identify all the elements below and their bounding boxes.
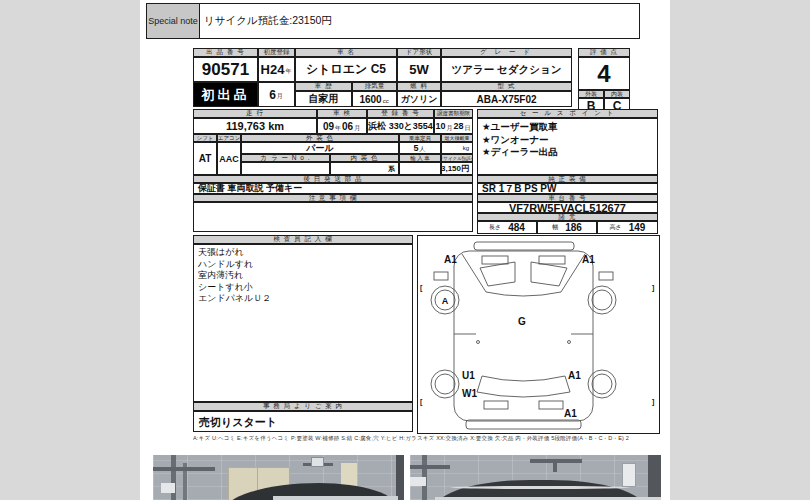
grade-header: グ レ ー ド (441, 48, 572, 57)
length-label: 長さ (489, 223, 501, 232)
door-shape: 5W (397, 57, 441, 82)
color-no-header: カ ラ ー N o . (241, 154, 330, 162)
score-header: 評 価 点 (578, 48, 630, 57)
wall-pipe (171, 455, 176, 500)
lot-number-header: 出 品 番 号 (193, 48, 258, 57)
fuel: ガソリン (397, 91, 441, 107)
model-code-header: 型 式 (441, 82, 572, 91)
oem-equipment: SR 1７B PS PW (477, 183, 658, 194)
score: 4 (578, 57, 630, 90)
svg-text:]: ] (652, 398, 654, 406)
wall-box (622, 463, 636, 487)
camera (311, 457, 324, 467)
damage-code-rear-right: A1 (568, 370, 581, 381)
deadline-month-unit: 月 (447, 124, 453, 133)
inspection-year-unit: 年 (335, 124, 341, 133)
door-frame (648, 455, 661, 500)
chassis-number-header: 車 台 番 号 (477, 194, 658, 202)
wall-box (161, 483, 175, 493)
sales-points-header: セ ー ル ス ポ イ ン ト (477, 109, 658, 118)
cc-unit: cc (383, 98, 389, 104)
damage-diagram: [ ] [ ] A1 A1 A G U1 W1 A1 A1 (417, 235, 660, 434)
length-value: 484 (508, 222, 525, 233)
vehicle-photo-2[interactable] (410, 455, 661, 500)
lot-number: 90571 (193, 57, 258, 82)
damage-code-glass: G (518, 316, 526, 327)
svg-text:[: [ (420, 398, 423, 406)
svg-text:[: [ (420, 284, 423, 292)
max-load: kg (441, 142, 473, 154)
exterior-color-header: 外 装 色 (241, 134, 399, 142)
office-notice: 売切りスタート (193, 411, 413, 432)
width-label: 幅 (552, 223, 558, 232)
width-value: 186 (565, 222, 582, 233)
damage-code-rear-left-lower: W1 (462, 388, 477, 399)
inspection-date: 09 年 06 月 (317, 118, 367, 134)
vehicle-photo-1[interactable] (153, 455, 404, 500)
first-registration-header: 初度登録 (258, 48, 295, 57)
inspector-note: シートすれ小 (198, 282, 408, 294)
displacement-header: 排気量 (352, 82, 397, 91)
svg-text:]: ] (652, 284, 654, 292)
damage-code-front-wheel: A (442, 296, 449, 306)
exterior-color: パール (241, 142, 399, 154)
aircon: AAC (217, 142, 241, 175)
oem-equipment-header: 純 正 装 備 (477, 175, 658, 183)
import-flag (399, 162, 441, 175)
first-registration-year: H24 年 (258, 57, 295, 82)
month-unit: 月 (277, 92, 283, 101)
inspector-note: 天張はがれ (198, 247, 408, 259)
car-name: シトロエン C5 (295, 57, 397, 82)
first-registration-month: 6 月 (258, 82, 295, 107)
car-name-header: 車 名 (295, 48, 397, 57)
damage-code-front-left: A1 (444, 254, 457, 265)
mileage-header: 走 行 (193, 109, 317, 118)
later-parts: 保証書 車両取説 予備キー (193, 183, 473, 194)
fuel-header: 燃 料 (397, 82, 441, 91)
import-header: 輸 入 車 (399, 154, 441, 162)
inspector-notes-header: 検 査 員 記 入 欄 (193, 235, 413, 244)
recycle-deposit: 23,150円 (441, 162, 473, 175)
car-body (273, 496, 398, 500)
inspector-note: 室内薄汚れ (198, 270, 408, 282)
caution-box (193, 202, 473, 232)
door-shape-header: ドア形状 (397, 48, 441, 57)
capacity-unit: 人 (420, 145, 426, 154)
front-bumper-shape (474, 242, 574, 250)
ceiling-pipe (553, 459, 557, 472)
sales-point-item: ★ユーザー買取車 (482, 121, 653, 134)
spec-height: 高さ 149 (597, 221, 658, 234)
model-code: ABA-X75F02 (441, 91, 572, 107)
capacity-header: 乗車定員 (399, 134, 441, 142)
displacement: 1600 cc (352, 91, 397, 107)
registration-number: 浜松 330と3554 (367, 118, 434, 134)
office-notice-header: 事 務 局 よ り ご 案 内 (193, 402, 413, 411)
sales-points-box: ★ユーザー買取車 ★ワンオーナー ★ディーラー出品 (477, 118, 658, 175)
damage-code-rear-left-upper: U1 (462, 370, 475, 381)
capacity-value: 5 (413, 143, 418, 153)
damage-code-front-right: A1 (582, 254, 595, 265)
inspector-note: ハンドルすれ (198, 259, 408, 271)
document-deadline-header: 譲渡書類期限 (434, 109, 473, 118)
wall-pipe (153, 467, 215, 471)
mileage: 119,763 km (193, 118, 317, 134)
left-mirror-shape (434, 272, 448, 280)
inspection-header: 車 検 (317, 109, 367, 118)
spec-width: 幅 186 (537, 221, 597, 234)
history-header: 車 歴 (295, 82, 352, 91)
wall-box (410, 477, 426, 486)
year-unit: 年 (285, 67, 291, 76)
shift: AT (193, 142, 217, 175)
later-parts-header: 後 日 発 送 部 品 (193, 175, 473, 183)
aircon-header: エアコン (217, 134, 241, 142)
exterior-grade-header: 外装 (578, 90, 604, 98)
interior-grade-header: 内装 (604, 90, 630, 98)
recycle-deposit-header: リサイクル預託金 (441, 154, 473, 162)
auction-listing-page: Special note リサイクル預託金:23150円 出 品 番 号 初度登… (0, 0, 810, 500)
caution-header: 注 意 事 項 欄 (193, 194, 473, 202)
color-no (241, 162, 330, 175)
capacity: 5 人 (399, 142, 441, 154)
damage-code-rear-bumper: A1 (564, 408, 577, 419)
height-value: 149 (629, 222, 646, 233)
deadline-month: 10 (435, 121, 445, 131)
inspection-year: 09 (323, 121, 334, 132)
shift-header: シフト (193, 134, 217, 142)
first-registration-month-value: 6 (269, 88, 276, 102)
sales-point-item: ★ワンオーナー (482, 134, 653, 147)
chassis-number: VF7RW5FVACL512677 (477, 202, 658, 213)
right-mirror-shape (599, 272, 613, 280)
damage-legend: A:キズ U:ヘコミ E:キズを伴うヘコミ P:要塗装 W:補修跡 S:錆 C:… (193, 435, 658, 442)
inspector-note: エンドパネルＵ２ (198, 293, 408, 305)
grade: ツアラー セダクション (441, 57, 572, 82)
inspection-month: 06 (342, 121, 353, 132)
registration-number-header: 登 録 番 号 (367, 109, 434, 118)
door-frame (396, 455, 404, 500)
special-note-label: Special note (146, 3, 200, 39)
roof-rail (450, 486, 630, 489)
inspection-month-unit: 月 (354, 124, 360, 133)
first-registration-year-value: H24 (261, 62, 285, 77)
interior-color: 系 (330, 162, 399, 175)
sales-point-item: ★ディーラー出品 (482, 146, 653, 159)
deadline-day-unit: 日 (465, 124, 471, 133)
wall-pipe (410, 465, 450, 469)
max-load-header: 最大積載量 (441, 134, 473, 142)
deadline-day: 28 (454, 121, 464, 131)
displacement-value: 1600 (359, 94, 381, 105)
spec-length: 長さ 484 (477, 221, 537, 234)
interior-color-header: 内 装 色 (330, 154, 399, 162)
special-note-text: リサイクル預託金:23150円 (199, 3, 640, 39)
spec-header: 諸 元 (477, 213, 658, 221)
height-label: 高さ (610, 223, 622, 232)
first-listing-badge: 初出品 (193, 82, 258, 107)
inspector-notes-box: 天張はがれ ハンドルすれ 室内薄汚れ シートすれ小 エンドパネルＵ２ (193, 244, 413, 402)
document-deadline: 10 月 28 日 (434, 118, 473, 134)
history: 自家用 (295, 91, 352, 107)
